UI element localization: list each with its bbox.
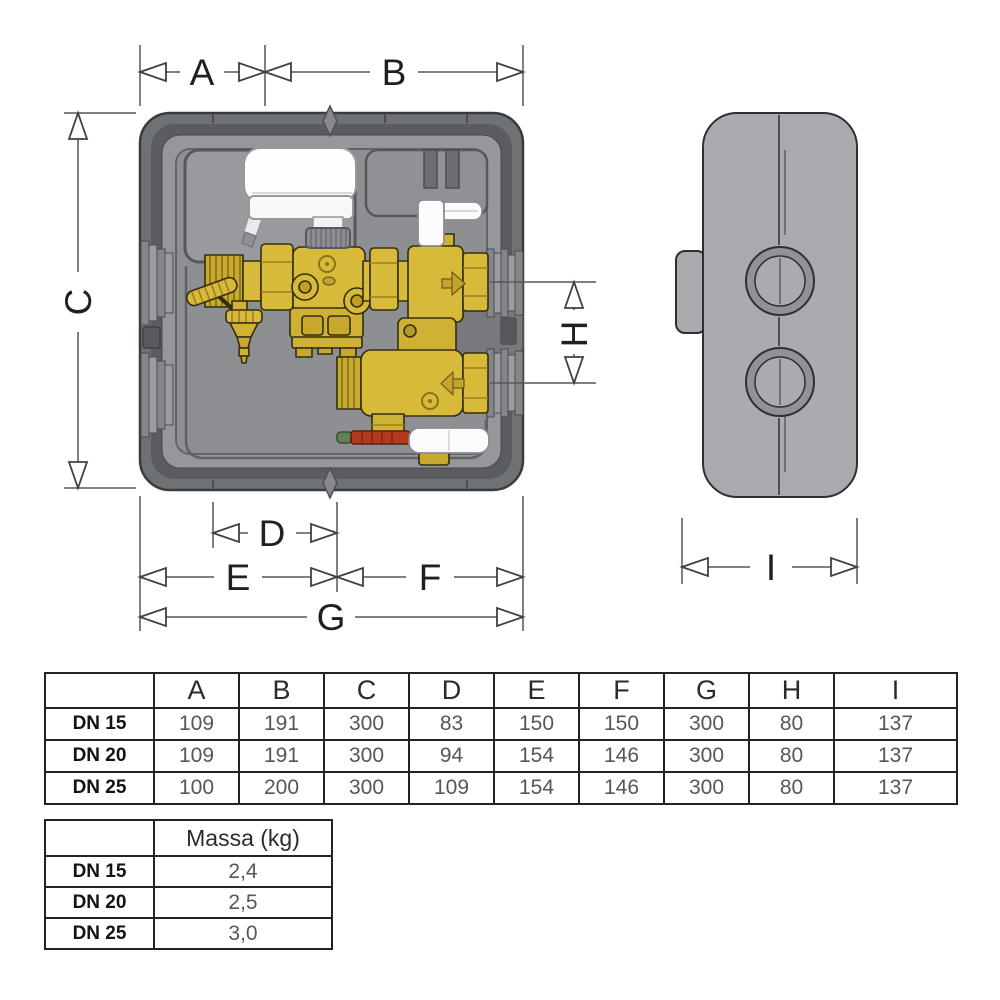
table-cell: 146 bbox=[579, 740, 664, 772]
thermometer-pocket bbox=[351, 431, 410, 444]
dimension-label-b: B bbox=[382, 52, 407, 93]
table-cell: 137 bbox=[834, 772, 957, 804]
table-cell: 137 bbox=[834, 708, 957, 740]
table-row: DN 20 109 191 300 94 154 146 300 80 137 bbox=[45, 740, 957, 772]
row-label: DN 20 bbox=[45, 887, 154, 918]
left-knockout-lower bbox=[141, 353, 173, 437]
row-label: DN 25 bbox=[45, 918, 154, 949]
header-cell: A bbox=[154, 673, 239, 708]
dimension-label-a: A bbox=[190, 52, 215, 93]
table-row: DN 25 3,0 bbox=[45, 918, 332, 949]
header-cell: D bbox=[409, 673, 494, 708]
row-label: DN 15 bbox=[45, 708, 154, 740]
table-cell: 80 bbox=[749, 740, 834, 772]
dimension-table-header-row: A B C D E F G H I bbox=[45, 673, 957, 708]
table-row: DN 15 2,4 bbox=[45, 856, 332, 887]
table-cell: 83 bbox=[409, 708, 494, 740]
table-cell: 150 bbox=[579, 708, 664, 740]
table-cell: 80 bbox=[749, 708, 834, 740]
header-cell: Massa (kg) bbox=[154, 820, 332, 856]
header-cell: B bbox=[239, 673, 324, 708]
dimension-table: A B C D E F G H I DN 15 109 191 300 83 1… bbox=[44, 672, 958, 805]
row-label: DN 25 bbox=[45, 772, 154, 804]
table-row: DN 20 2,5 bbox=[45, 887, 332, 918]
ring-nut bbox=[306, 228, 350, 248]
mass-table-header-row: Massa (kg) bbox=[45, 820, 332, 856]
table-cell: 191 bbox=[239, 740, 324, 772]
table-cell: 191 bbox=[239, 708, 324, 740]
table-cell: 154 bbox=[494, 740, 579, 772]
table-cell: 200 bbox=[239, 772, 324, 804]
dimension-label-i: I bbox=[766, 547, 776, 588]
dimension-label-f: F bbox=[419, 557, 442, 598]
page: { "diagram": { "dimension_labels": {"a":… bbox=[0, 0, 1000, 1000]
right-knockout-square bbox=[500, 317, 517, 345]
table-cell: 300 bbox=[664, 708, 749, 740]
table-row: DN 15 109 191 300 83 150 150 300 80 137 bbox=[45, 708, 957, 740]
dimension-label-g: G bbox=[317, 597, 346, 638]
header-cell: C bbox=[324, 673, 409, 708]
table-cell: 100 bbox=[154, 772, 239, 804]
mass-table: Massa (kg) DN 15 2,4 DN 20 2,5 DN 25 3,0 bbox=[44, 819, 333, 950]
upper-coupling-ribs bbox=[487, 249, 523, 317]
header-cell: I bbox=[834, 673, 957, 708]
table-cell: 137 bbox=[834, 740, 957, 772]
table-cell: 300 bbox=[664, 740, 749, 772]
table-cell: 300 bbox=[664, 772, 749, 804]
header-cell bbox=[45, 820, 154, 856]
table-cell: 300 bbox=[324, 772, 409, 804]
table-cell: 109 bbox=[154, 708, 239, 740]
header-cell: E bbox=[494, 673, 579, 708]
row-label: DN 15 bbox=[45, 856, 154, 887]
dimension-label-d: D bbox=[259, 513, 286, 554]
table-cell: 80 bbox=[749, 772, 834, 804]
dimension-label-h: H bbox=[554, 321, 595, 348]
knockout-slot bbox=[424, 150, 437, 188]
table-cell: 3,0 bbox=[154, 918, 332, 949]
header-cell: H bbox=[749, 673, 834, 708]
header-cell: G bbox=[664, 673, 749, 708]
table-cell: 109 bbox=[154, 740, 239, 772]
dimension-label-e: E bbox=[226, 557, 251, 598]
header-cell: F bbox=[579, 673, 664, 708]
row-label: DN 20 bbox=[45, 740, 154, 772]
clip-icon bbox=[337, 432, 352, 443]
table-cell: 146 bbox=[579, 772, 664, 804]
table-row: DN 25 100 200 300 109 154 146 300 80 137 bbox=[45, 772, 957, 804]
knockout-slot bbox=[446, 150, 459, 188]
left-knockout-upper bbox=[141, 241, 173, 325]
table-cell: 300 bbox=[324, 740, 409, 772]
table-cell: 109 bbox=[409, 772, 494, 804]
table-cell: 94 bbox=[409, 740, 494, 772]
header-cell bbox=[45, 673, 154, 708]
table-cell: 2,5 bbox=[154, 887, 332, 918]
table-cell: 300 bbox=[324, 708, 409, 740]
table-cell: 150 bbox=[494, 708, 579, 740]
side-view-box bbox=[676, 113, 857, 497]
table-cell: 154 bbox=[494, 772, 579, 804]
dimension-label-c: C bbox=[58, 289, 99, 316]
table-cell: 2,4 bbox=[154, 856, 332, 887]
side-tab bbox=[676, 251, 706, 333]
left-knockout-square bbox=[143, 327, 160, 348]
